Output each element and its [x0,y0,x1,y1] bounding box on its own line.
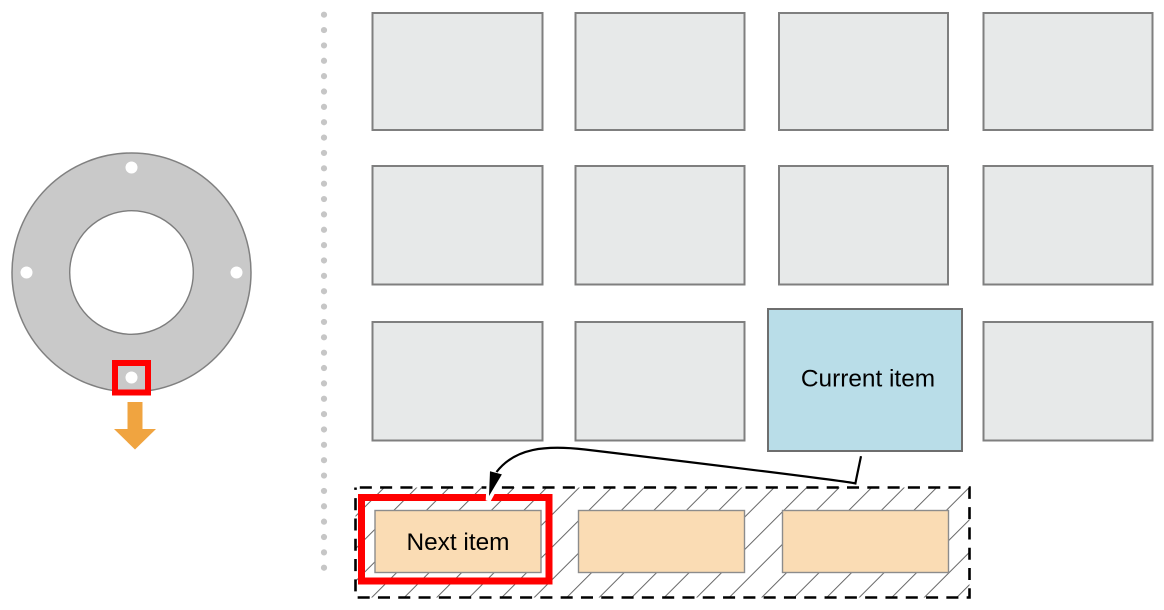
svg-text:Current item: Current item [801,366,935,393]
svg-text:Next item: Next item [406,529,509,556]
